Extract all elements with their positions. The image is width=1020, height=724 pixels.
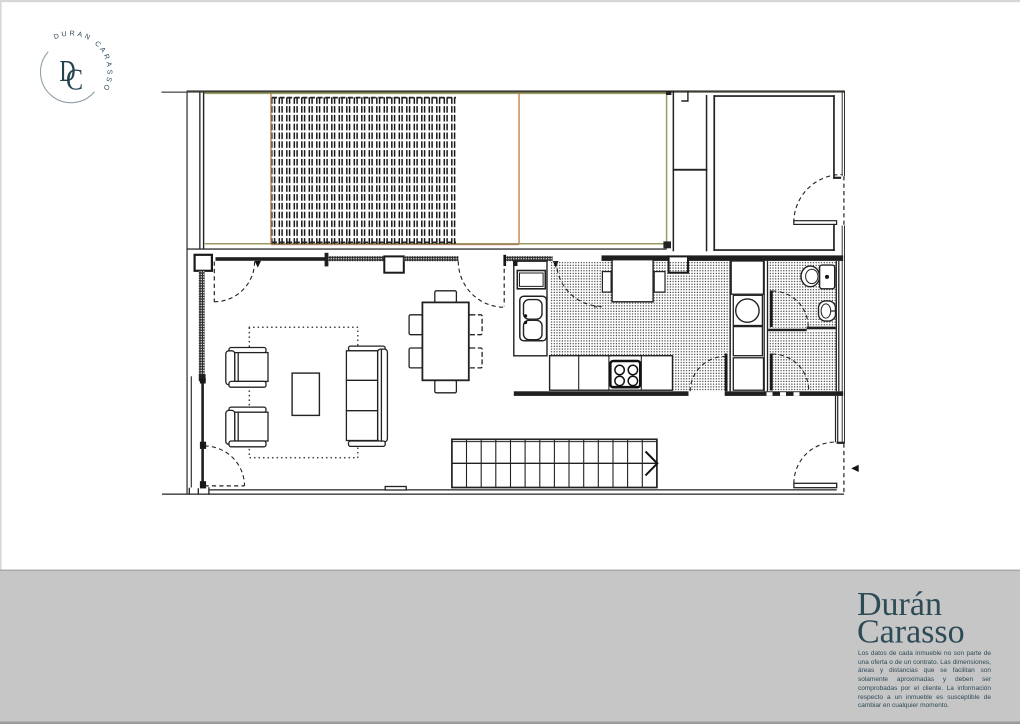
svg-text:C: C: [66, 64, 83, 98]
svg-text:Carasso: Carasso: [857, 614, 965, 651]
